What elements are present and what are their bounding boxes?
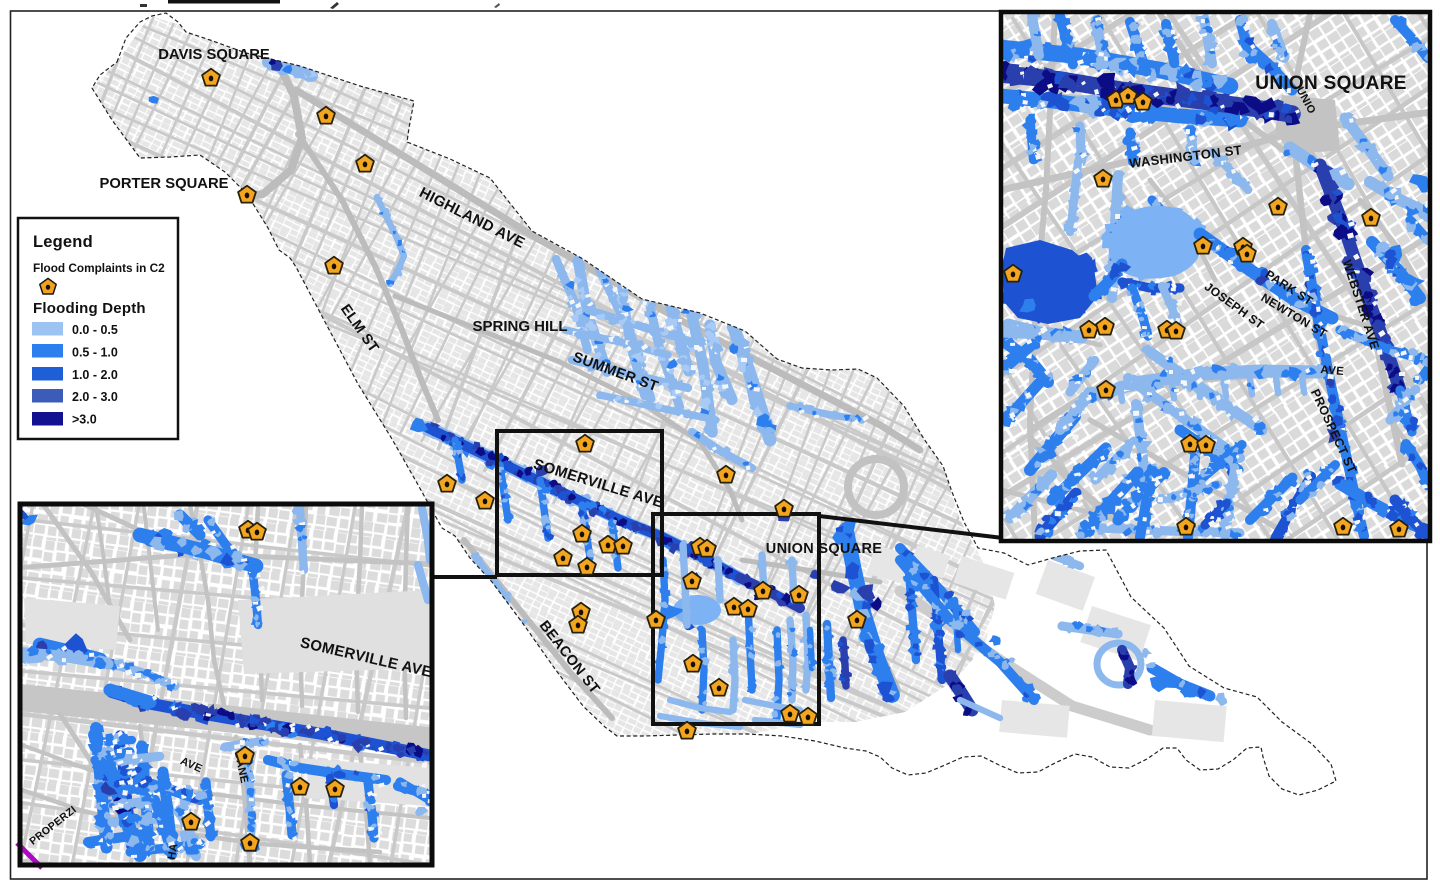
svg-text:Flood Complaints in C2: Flood Complaints in C2 xyxy=(33,261,165,275)
svg-text:2.0 - 3.0: 2.0 - 3.0 xyxy=(72,390,118,404)
svg-text:DAVIS SQUARE: DAVIS SQUARE xyxy=(158,47,270,63)
svg-text:UNION SQUARE: UNION SQUARE xyxy=(766,541,882,557)
svg-text:Legend: Legend xyxy=(33,233,93,251)
svg-text:0.0 - 0.5: 0.0 - 0.5 xyxy=(72,323,118,337)
svg-text:SPRING HILL: SPRING HILL xyxy=(472,318,567,335)
svg-text:Flooding Depth: Flooding Depth xyxy=(33,300,146,317)
svg-text:PORTER SQUARE: PORTER SQUARE xyxy=(99,176,228,192)
svg-text:1.0 - 2.0: 1.0 - 2.0 xyxy=(72,368,118,382)
svg-text:>3.0: >3.0 xyxy=(72,413,97,427)
svg-text:UNION SQUARE: UNION SQUARE xyxy=(1255,73,1406,94)
svg-text:0.5 - 1.0: 0.5 - 1.0 xyxy=(72,345,118,359)
svg-text:AVE: AVE xyxy=(1320,364,1345,378)
